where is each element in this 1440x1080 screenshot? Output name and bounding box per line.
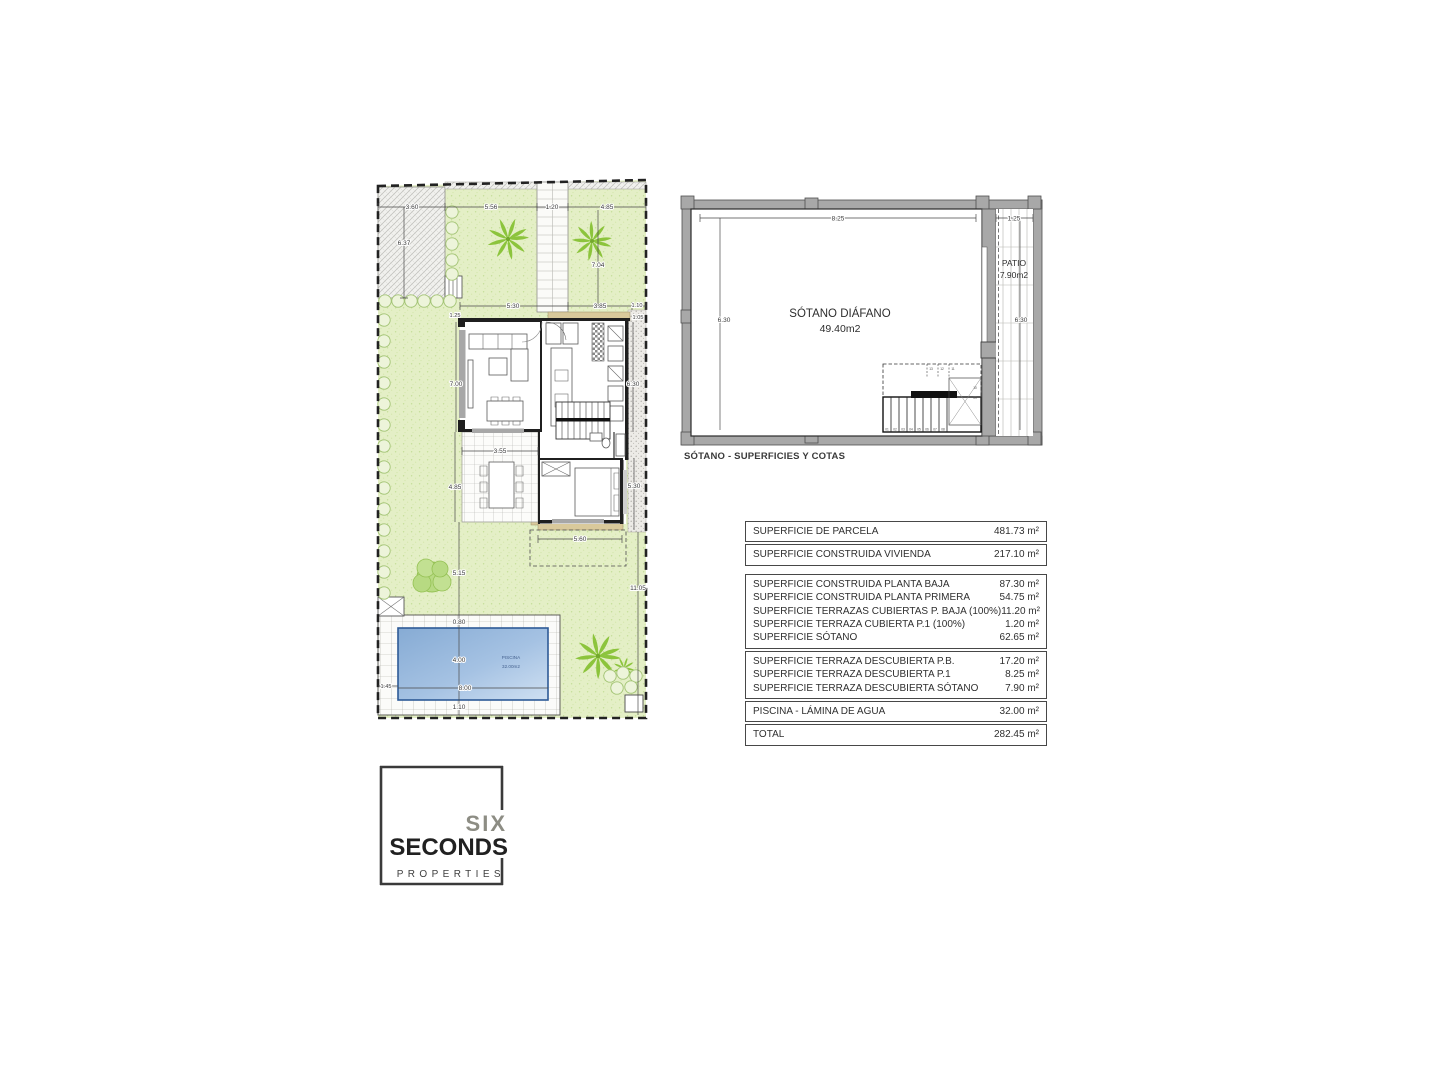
- step-number: 06: [925, 428, 929, 432]
- dim-label: 1.10: [632, 303, 643, 309]
- row-label: PISCINA - LÁMINA DE AGUA: [753, 705, 885, 718]
- step-number: 05: [917, 428, 921, 432]
- dim-label: 5.15: [453, 570, 466, 577]
- dim-label: 8.00: [459, 685, 472, 692]
- table-group-descubiertas: SUPERFICIE TERRAZA DESCUBIERTA P.B. 17.2…: [745, 651, 1047, 699]
- table-row: SUPERFICIE SÓTANO 62.65 m²: [746, 631, 1046, 644]
- step-number: 09: [973, 396, 977, 400]
- row-label: TOTAL: [753, 728, 784, 741]
- dim-label: 1.25: [450, 313, 461, 319]
- row-value: 11.20 m²: [1001, 605, 1040, 618]
- row-value: 1.20 m²: [1005, 618, 1039, 631]
- table-row: SUPERFICIE TERRAZA DESCUBIERTA P.B. 17.2…: [746, 655, 1046, 668]
- pool-area-label: 32.00m2: [502, 664, 520, 669]
- table-row: SUPERFICIE TERRAZAS CUBIERTAS P. BAJA (1…: [746, 605, 1046, 618]
- logo-word-properties: PROPERTIES: [397, 869, 505, 880]
- row-label: SUPERFICIE TERRAZA DESCUBIERTA SÓTANO: [753, 682, 978, 695]
- table-group-construidas: SUPERFICIE CONSTRUIDA PLANTA BAJA 87.30 …: [745, 574, 1047, 649]
- basement-stairs: 01 02 03 04 05 06 07 08 10 09 13 12 11: [883, 364, 981, 432]
- house-ground-floor: [458, 312, 630, 530]
- row-label: SUPERFICIE TERRAZA CUBIERTA P.1 (100%): [753, 618, 965, 631]
- dim-label: 0.80: [453, 619, 466, 626]
- pool-label: PISCINA: [502, 655, 521, 660]
- dim-label: 1.45: [381, 684, 392, 690]
- outdoor-shower: [378, 597, 404, 616]
- dim-label: 6.37: [398, 240, 411, 247]
- pool: [398, 628, 548, 700]
- step-number: 01: [885, 428, 889, 432]
- row-label: SUPERFICIE CONSTRUIDA PLANTA PRIMERA: [753, 591, 970, 604]
- row-value: 481.73 m²: [994, 525, 1039, 538]
- step-number: 13: [929, 367, 933, 371]
- row-label: SUPERFICIE SÓTANO: [753, 631, 857, 644]
- table-row: SUPERFICIE TERRAZA CUBIERTA P.1 (100%) 1…: [746, 618, 1046, 631]
- dim-label: 6.30: [718, 317, 731, 324]
- gravel-strip: [628, 310, 646, 532]
- logo-word-six: SIX: [466, 811, 507, 836]
- row-label: SUPERFICIE TERRAZA DESCUBIERTA P.B.: [753, 655, 955, 668]
- dim-label: 4.00: [453, 657, 466, 664]
- tree-icon: [413, 559, 451, 592]
- row-value: 32.00 m²: [1000, 705, 1039, 718]
- areas-table: SUPERFICIE DE PARCELA 481.73 m² SUPERFIC…: [745, 521, 1047, 746]
- step-number: 04: [909, 428, 913, 432]
- table-row: SUPERFICIE TERRAZA DESCUBIERTA P.1 8.25 …: [746, 668, 1046, 681]
- basement-room-area: 49.40m2: [820, 323, 861, 335]
- patio-label: PATIO: [1002, 258, 1027, 268]
- step-number: 11: [951, 367, 955, 371]
- patio-area-label: 7.90m2: [1000, 270, 1029, 280]
- table-group-total: TOTAL 282.45 m²: [745, 724, 1047, 745]
- dim-label: 3.60: [406, 204, 419, 211]
- dim-label: 1.20: [546, 204, 559, 211]
- company-logo: SIX SECONDS PROPERTIES: [378, 764, 514, 890]
- dim-label: 1.05: [633, 315, 644, 321]
- table-group-piscina: PISCINA - LÁMINA DE AGUA 32.00 m²: [745, 701, 1047, 722]
- dim-label: 3.85: [594, 303, 607, 310]
- row-value: 282.45 m²: [994, 728, 1039, 741]
- dim-label: 5.30: [628, 483, 641, 490]
- row-value: 87.30 m²: [1000, 578, 1039, 591]
- dim-label: 11.05: [630, 585, 646, 592]
- step-number: 10: [973, 386, 977, 390]
- table-group-parcela: SUPERFICIE DE PARCELA 481.73 m²: [745, 521, 1047, 542]
- dim-label: 1.25: [1008, 216, 1021, 223]
- entry-walkway: [537, 182, 568, 312]
- step-number: 03: [901, 428, 905, 432]
- dim-label: 5.56: [485, 204, 498, 211]
- floor-plan-sheet: 3.60 5.56 1.20 4.85 6.37 7.04 5.30 3.85 …: [0, 0, 1440, 1080]
- step-number: 12: [940, 367, 944, 371]
- table-row: SUPERFICIE CONSTRUIDA VIVIENDA 217.10 m²: [746, 548, 1046, 561]
- table-row: SUPERFICIE DE PARCELA 481.73 m²: [746, 525, 1046, 538]
- row-value: 7.90 m²: [1005, 682, 1039, 695]
- step-number: 08: [941, 428, 945, 432]
- corner-pad: [625, 695, 643, 712]
- table-row: TOTAL 282.45 m²: [746, 728, 1046, 741]
- table-row: SUPERFICIE CONSTRUIDA PLANTA PRIMERA 54.…: [746, 591, 1046, 604]
- dim-label: 6.30: [1015, 317, 1028, 324]
- dim-label: 5.30: [507, 303, 520, 310]
- dim-label: 7.04: [592, 262, 605, 269]
- basement-room-label: SÓTANO DIÁFANO: [789, 307, 890, 320]
- dim-label: 7.00: [450, 381, 463, 388]
- row-value: 217.10 m²: [994, 548, 1039, 561]
- table-group-vivienda: SUPERFICIE CONSTRUIDA VIVIENDA 217.10 m²: [745, 544, 1047, 565]
- row-value: 54.75 m²: [1000, 591, 1039, 604]
- basement-plan: 01 02 03 04 05 06 07 08 10 09 13 12 11 8…: [680, 192, 1045, 450]
- step-number: 07: [933, 428, 937, 432]
- row-value: 17.20 m²: [1000, 655, 1039, 668]
- dim-label: 8.25: [832, 216, 845, 223]
- row-label: SUPERFICIE TERRAZAS CUBIERTAS P. BAJA (1…: [753, 605, 1001, 618]
- dim-label: 3.55: [494, 448, 507, 455]
- table-row: SUPERFICIE CONSTRUIDA PLANTA BAJA 87.30 …: [746, 578, 1046, 591]
- table-row: PISCINA - LÁMINA DE AGUA 32.00 m²: [746, 705, 1046, 718]
- row-value: 8.25 m²: [1005, 668, 1039, 681]
- dim-label: 6.30: [627, 381, 640, 388]
- row-label: SUPERFICIE CONSTRUIDA PLANTA BAJA: [753, 578, 950, 591]
- site-plan: 3.60 5.56 1.20 4.85 6.37 7.04 5.30 3.85 …: [370, 170, 655, 725]
- dim-label: 1.10: [453, 704, 466, 711]
- dim-label: 4.85: [601, 204, 614, 211]
- table-row: SUPERFICIE TERRAZA DESCUBIERTA SÓTANO 7.…: [746, 682, 1046, 695]
- logo-word-seconds: SECONDS: [389, 834, 508, 861]
- dim-label: 4.85: [449, 484, 462, 491]
- row-label: SUPERFICIE TERRAZA DESCUBIERTA P.1: [753, 668, 951, 681]
- row-label: SUPERFICIE DE PARCELA: [753, 525, 878, 538]
- basement-caption: SÓTANO - SUPERFICIES Y COTAS: [684, 451, 845, 462]
- row-value: 62.65 m²: [1000, 631, 1039, 644]
- step-number: 02: [893, 428, 897, 432]
- patio-wall: [981, 209, 997, 436]
- row-label: SUPERFICIE CONSTRUIDA VIVIENDA: [753, 548, 931, 561]
- dim-label: 5.60: [574, 536, 587, 543]
